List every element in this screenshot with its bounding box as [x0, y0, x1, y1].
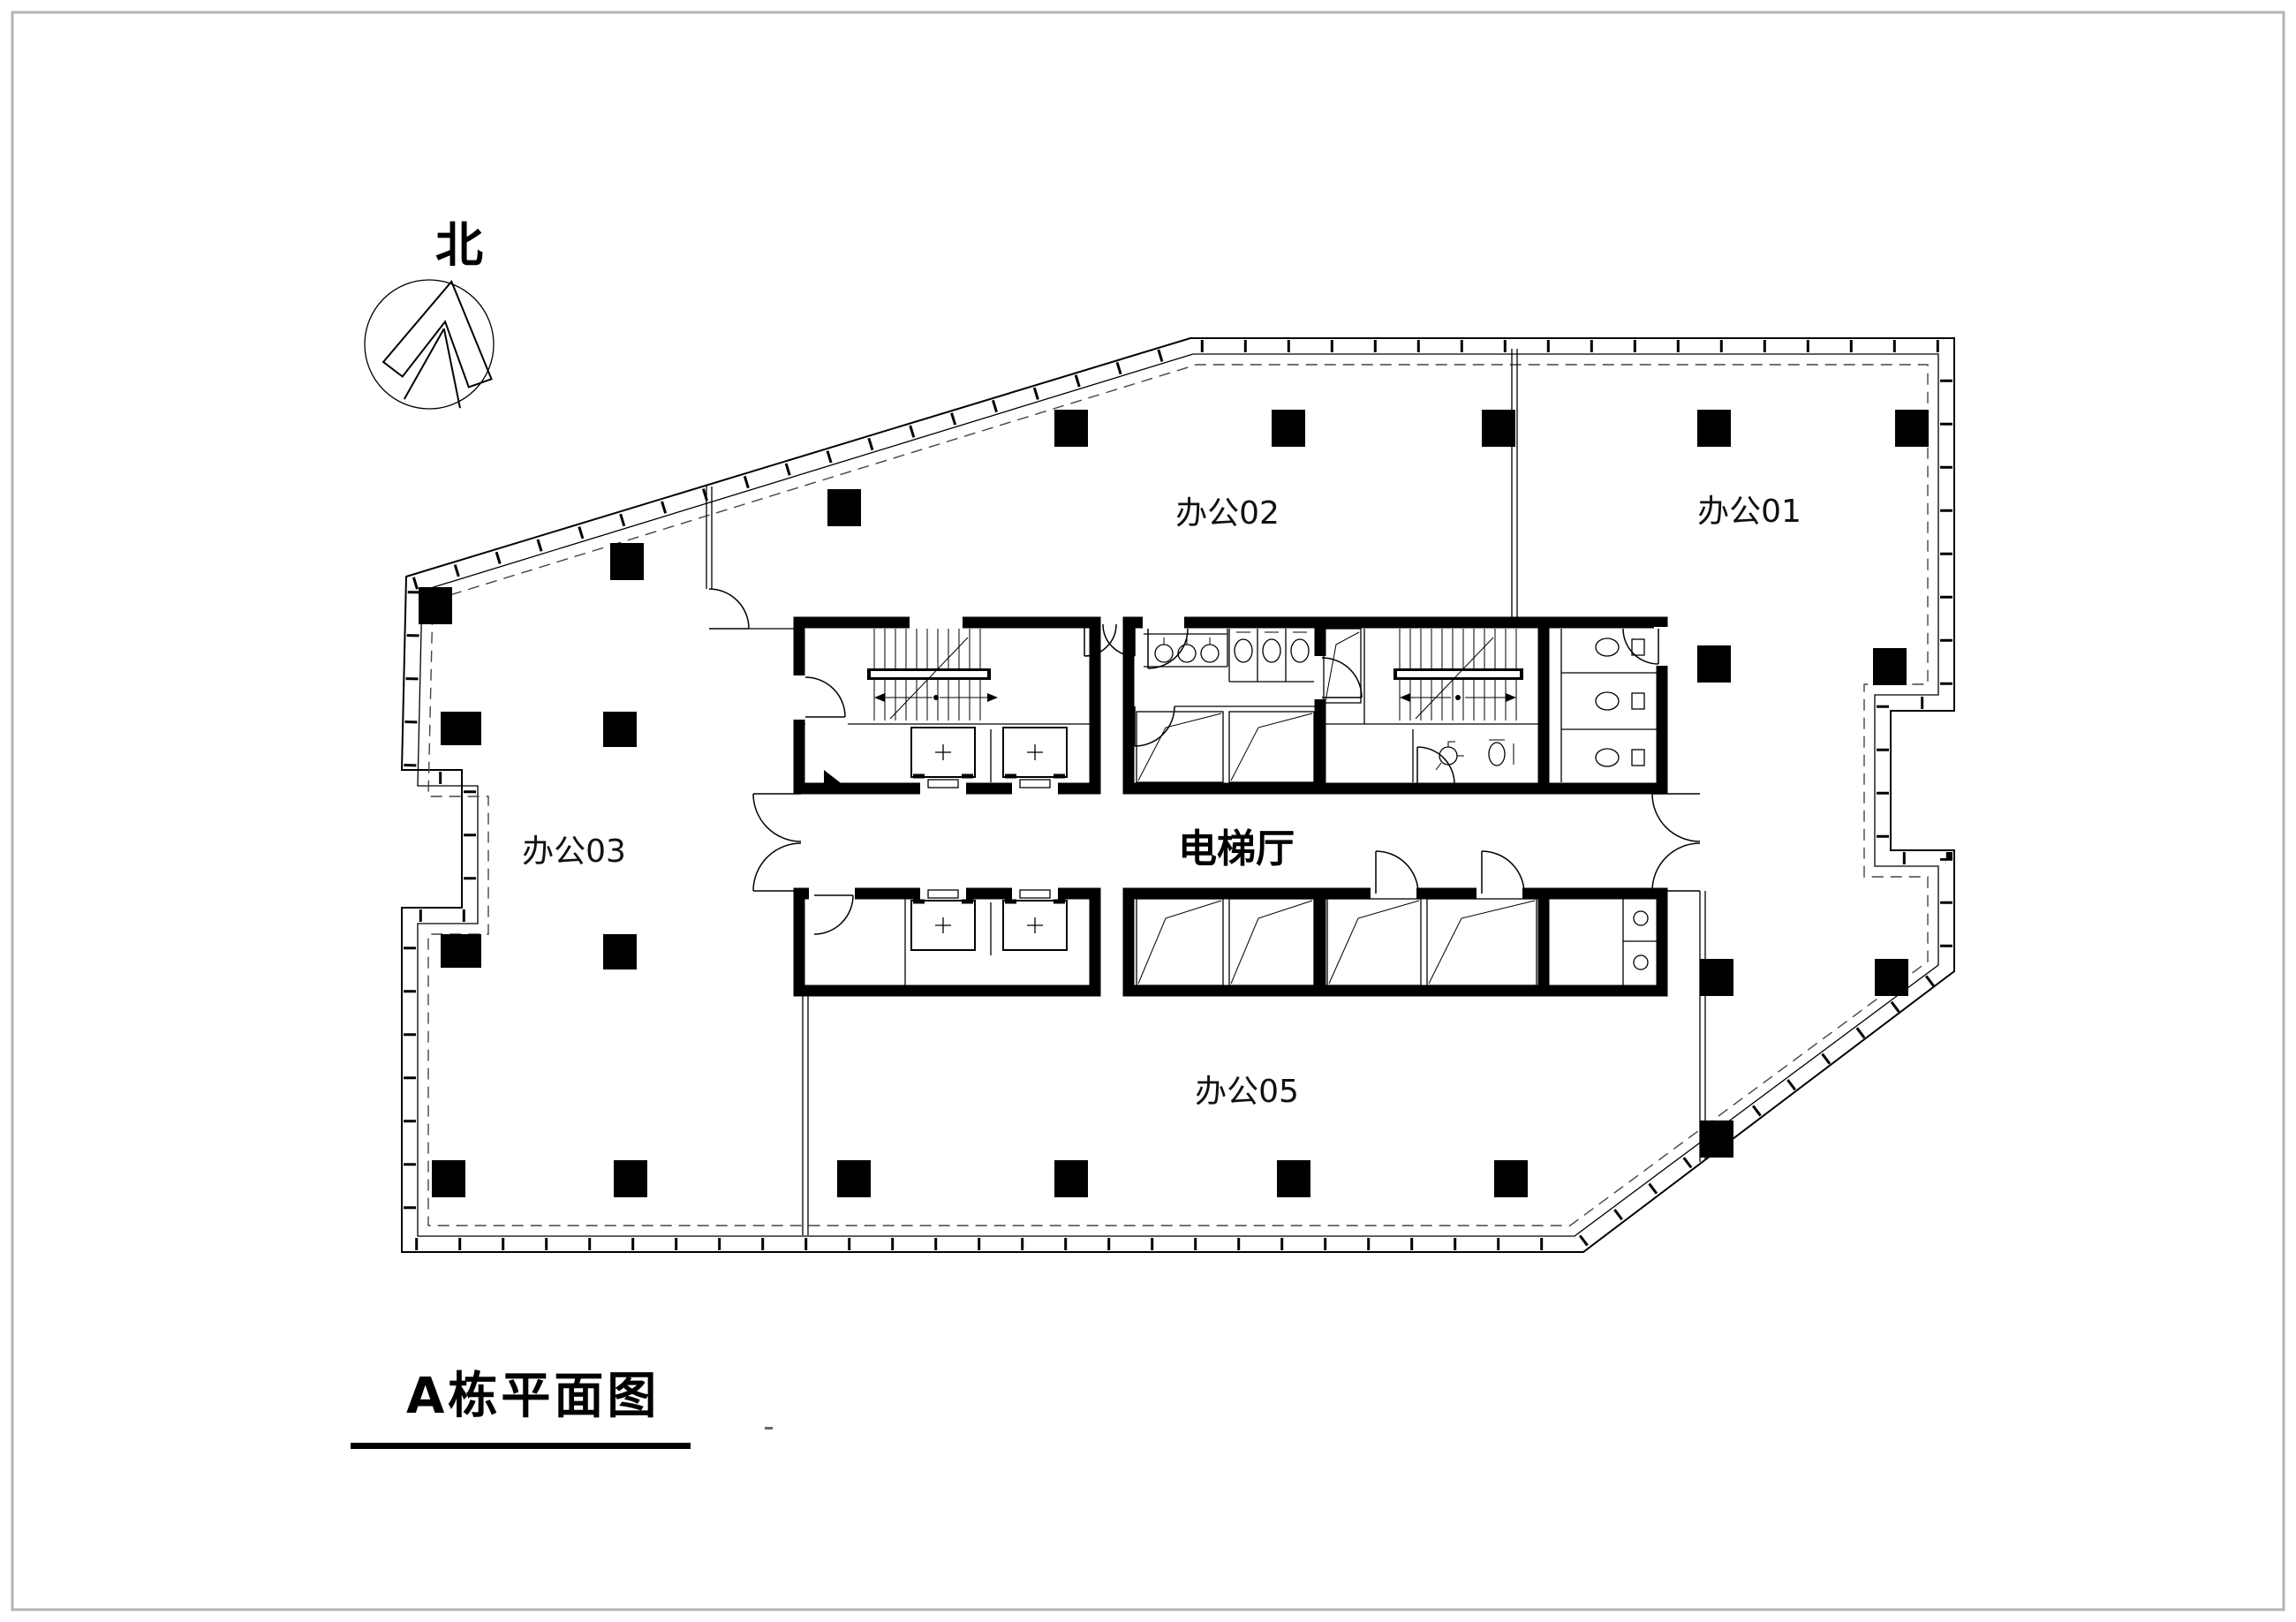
core-shaft-block-lower-1	[1129, 894, 1320, 991]
drawing-sheet: 北	[0, 0, 2296, 1622]
column	[1700, 959, 1733, 996]
door-arc-hall-left-lower	[753, 843, 801, 891]
core-washroom-block	[1129, 615, 1320, 788]
column	[1054, 1160, 1088, 1197]
north-label: 北	[435, 217, 483, 273]
door-arc	[709, 589, 749, 629]
title-underline	[351, 1443, 691, 1449]
door-arc-hall-right-lower	[1652, 843, 1700, 891]
room-label-office02: 办公02	[1175, 495, 1280, 532]
column	[1277, 1160, 1310, 1197]
core-stair2-block	[1314, 622, 1544, 788]
column	[419, 587, 452, 624]
core-stair1-elevator-block	[791, 615, 1095, 796]
title-block: A栋平面图	[351, 1368, 773, 1449]
column	[603, 934, 637, 969]
facade-inner-line	[418, 354, 1938, 1236]
north-circle	[365, 280, 494, 409]
column	[1895, 410, 1929, 447]
plan-title: A栋平面图	[406, 1368, 660, 1425]
column	[1482, 410, 1515, 447]
column	[603, 712, 637, 747]
column	[441, 934, 481, 968]
column	[1875, 959, 1908, 996]
core-wc-strip	[1544, 622, 1670, 788]
building-facade	[402, 338, 1954, 1252]
partition-office02-office01	[1512, 349, 1517, 624]
column	[441, 712, 481, 745]
door-arc-hall-left-upper	[753, 794, 801, 841]
room-label-office01: 办公01	[1697, 494, 1801, 530]
column	[827, 489, 861, 526]
column	[1697, 410, 1731, 447]
core-shaft-block-lower-2	[1320, 886, 1544, 991]
room-labels: 办公02 办公01 办公03 办公05 电梯厅	[522, 494, 1801, 1110]
stray-mark	[765, 1427, 773, 1430]
room-label-office03: 办公03	[522, 834, 626, 870]
service-core	[791, 615, 1670, 991]
facade-mullion-band	[410, 346, 1946, 1244]
facade-outer-line	[402, 338, 1954, 1252]
column	[1697, 645, 1731, 683]
column	[1272, 410, 1305, 447]
core-elevator-block-lower	[799, 886, 1095, 991]
column	[1700, 1120, 1733, 1158]
partition-office03-office05	[803, 991, 808, 1235]
column	[610, 543, 644, 580]
north-indicator: 北	[365, 217, 505, 412]
column	[1054, 410, 1088, 447]
room-label-office05: 办公05	[1195, 1074, 1299, 1110]
core-pantry-block	[1544, 894, 1662, 991]
column	[837, 1160, 871, 1197]
column	[432, 1160, 465, 1197]
door-arc-hall-right-upper	[1652, 794, 1700, 841]
floor-plan-canvas: 北	[0, 0, 2296, 1622]
column	[1873, 648, 1907, 685]
column	[1494, 1160, 1528, 1197]
room-label-elevator-hall: 电梯厅	[1178, 826, 1295, 871]
sheet-border	[12, 12, 2284, 1610]
north-arrow-icon	[378, 273, 505, 412]
column	[614, 1160, 647, 1197]
